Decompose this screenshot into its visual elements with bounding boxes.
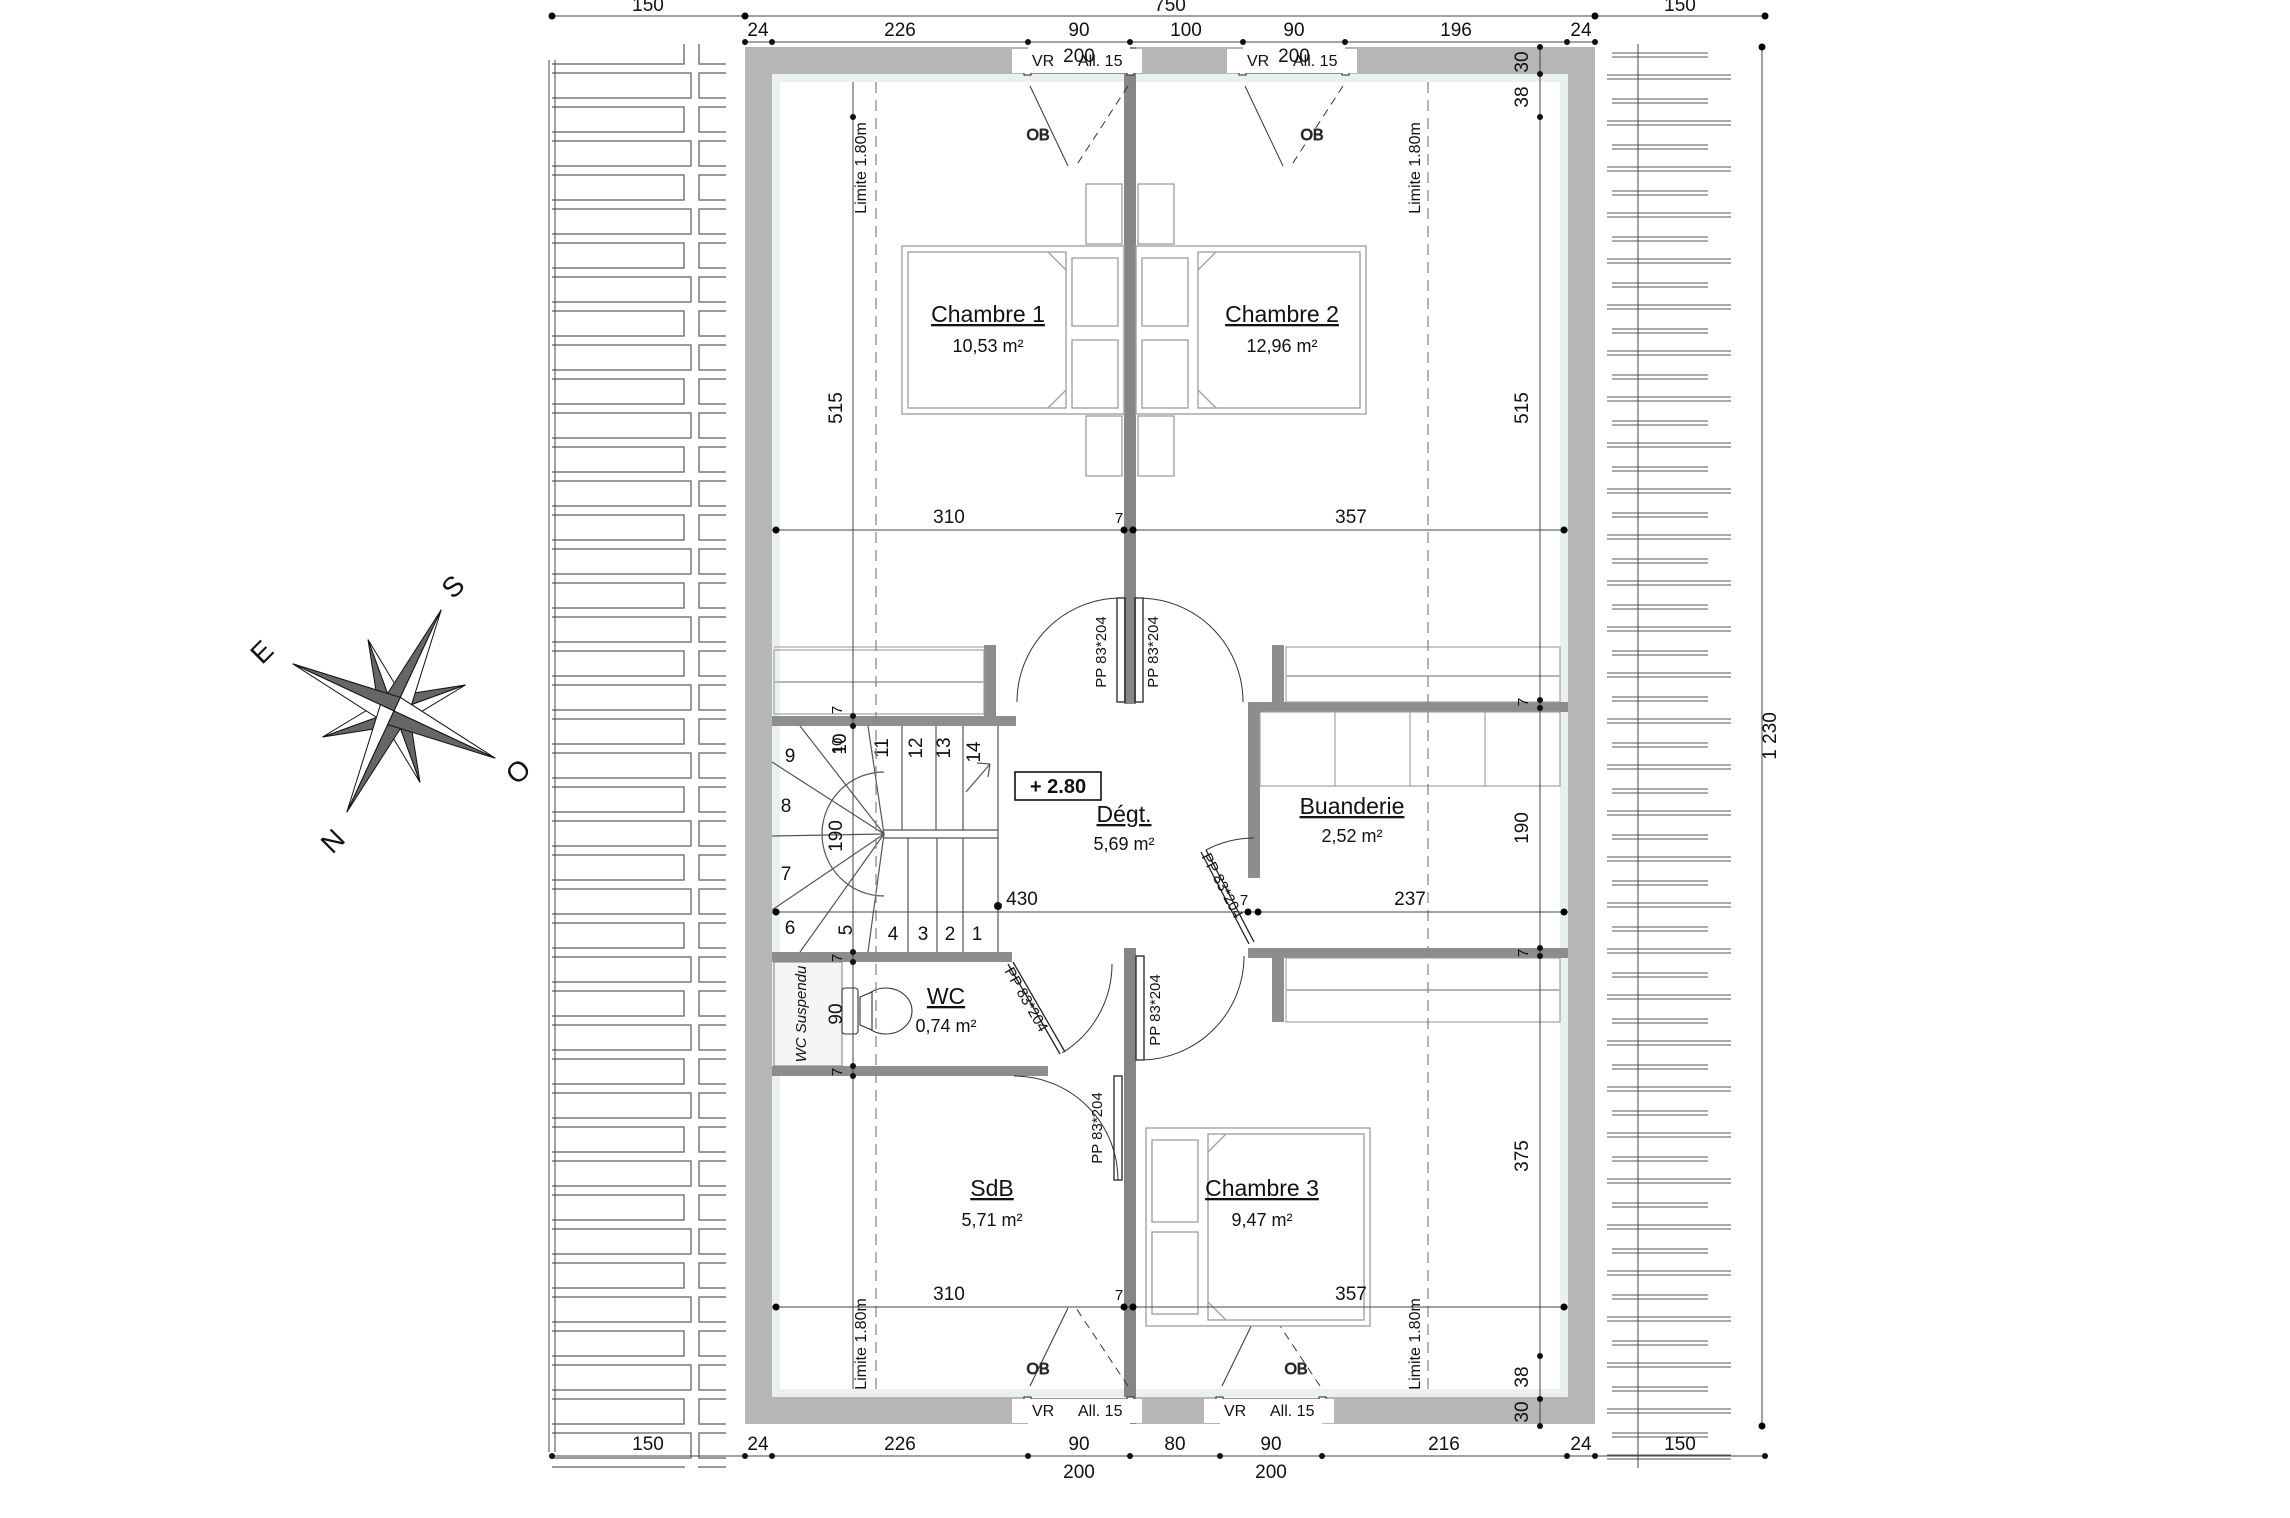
dim-bot-90: 90 <box>1068 1434 1089 1455</box>
room-name-buanderie: Buanderie <box>1300 793 1405 819</box>
dim-right-515: 515 <box>1512 392 1533 424</box>
door-chambre2: PP 83*204 <box>1135 598 1243 702</box>
dim-left-10: 10 <box>829 738 846 755</box>
dim-mid-310: 310 <box>933 507 965 528</box>
step-12: 12 <box>906 737 927 758</box>
dim-top-left-150: 150 <box>632 0 664 16</box>
step-9: 9 <box>785 746 796 767</box>
window-vr-label: VR <box>1224 1403 1246 1420</box>
door-size-label: PP 83*204 <box>1145 616 1162 687</box>
stair-direction-arrow <box>966 763 990 792</box>
nightstand <box>1086 184 1122 244</box>
dim-bot-80: 80 <box>1164 1434 1185 1455</box>
dim-top-24b: 24 <box>1570 20 1592 41</box>
bed-chambre2 <box>1136 184 1366 476</box>
room-area-buanderie: 2,52 m² <box>1321 826 1382 846</box>
step-2: 2 <box>945 924 956 945</box>
staircase: 1 2 3 4 5 6 7 8 9 10 11 12 13 14 + 2.80 <box>772 726 1101 952</box>
dim-top-90: 90 <box>1068 20 1089 41</box>
compass-west-label: O <box>500 753 537 790</box>
limite-label: Limite 1.80m <box>1407 122 1424 214</box>
step-4: 4 <box>888 924 899 945</box>
dim-right-38: 38 <box>1512 86 1533 107</box>
closet-chambre2 <box>1286 647 1560 702</box>
dim-right-7: 7 <box>1515 698 1532 706</box>
dim-left-90: 90 <box>826 1003 847 1024</box>
dim-top-200: 200 <box>1063 46 1095 67</box>
dim-bot-150b: 150 <box>1664 1434 1696 1455</box>
floor-plan-page: VR All. 15 VR All. 15 VR All. 15 VR All.… <box>0 0 2290 1518</box>
dim-top-right-150: 150 <box>1664 0 1696 16</box>
compass-star <box>293 610 496 813</box>
dim-bot-200b: 200 <box>1255 1462 1287 1483</box>
limite-label: Limite 1.80m <box>1407 1298 1424 1390</box>
dim-right-30b: 30 <box>1512 1401 1533 1422</box>
dim-low-7: 7 <box>1115 1287 1123 1304</box>
dim-top-196: 196 <box>1440 20 1472 41</box>
dim-bot-216: 216 <box>1428 1434 1460 1455</box>
dim-top-100: 100 <box>1170 20 1202 41</box>
room-name-sdb: SdB <box>970 1175 1013 1201</box>
dim-low-310: 310 <box>933 1284 965 1305</box>
level-value: + 2.80 <box>1030 776 1086 798</box>
dim-bot-24b: 24 <box>1570 1434 1592 1455</box>
dim-right-38b: 38 <box>1512 1366 1533 1387</box>
floor-plan-drawing: VR All. 15 VR All. 15 VR All. 15 VR All.… <box>0 0 2290 1518</box>
dim-top-750: 750 <box>1154 0 1186 16</box>
door-size-label: PP 83*204 <box>1089 1092 1106 1163</box>
ob-label: OB <box>1026 127 1049 144</box>
room-name-degagement: Dégt. <box>1097 801 1152 827</box>
step-3: 3 <box>918 924 929 945</box>
dim-top-200b: 200 <box>1278 46 1310 67</box>
door-buanderie: PP 83*204 <box>1198 838 1254 944</box>
bed-chambre1 <box>902 184 1124 476</box>
dim-right-190: 190 <box>1512 812 1533 844</box>
door-chambre3: PP 83*204 <box>1136 956 1244 1060</box>
door-size-label: PP 83*204 <box>1147 974 1164 1045</box>
step-14: 14 <box>964 741 985 763</box>
nightstand <box>1086 416 1122 476</box>
limite-label: Limite 1.80m <box>853 1298 870 1390</box>
dim-bot-150: 150 <box>632 1434 664 1455</box>
dim-right-30: 30 <box>1512 51 1533 72</box>
dim-left-7: 7 <box>829 706 846 714</box>
door-size-label: PP 83*204 <box>1198 850 1247 921</box>
ob-label: OB <box>1284 1361 1307 1378</box>
ob-label: OB <box>1026 1361 1049 1378</box>
level-marker: + 2.80 <box>1015 772 1101 800</box>
dim-mid-357: 357 <box>1335 507 1367 528</box>
dim-low-357: 357 <box>1335 1284 1367 1305</box>
dim-mid-7: 7 <box>1115 510 1123 527</box>
compass-east-label: E <box>244 634 279 669</box>
dim-left-515: 515 <box>826 392 847 424</box>
compass-rose: E S N O <box>242 561 542 864</box>
door-wc: PP 83*204 <box>1001 962 1112 1054</box>
step-6: 6 <box>785 918 796 939</box>
step-7: 7 <box>781 864 792 885</box>
dim-bot-24: 24 <box>747 1434 769 1455</box>
room-area-degagement: 5,69 m² <box>1093 834 1154 854</box>
room-area-chambre3: 9,47 m² <box>1231 1210 1292 1230</box>
dim-top-226: 226 <box>884 20 916 41</box>
compass-north-label: N <box>315 823 351 859</box>
dim-bot-200: 200 <box>1063 1462 1095 1483</box>
buanderie-shelves <box>1260 712 1560 786</box>
door-sdb: PP 83*204 <box>1014 1076 1122 1180</box>
dim-right-overall-1230: 1 230 <box>1760 712 1781 760</box>
step-5: 5 <box>836 925 857 936</box>
roof-left <box>549 44 726 1468</box>
dim-hall-7: 7 <box>1240 892 1248 909</box>
door-size-label: PP 83*204 <box>1093 616 1110 687</box>
limite-label: Limite 1.80m <box>853 122 870 214</box>
room-area-wc: 0,74 m² <box>915 1016 976 1036</box>
dim-top-24: 24 <box>747 20 769 41</box>
step-1: 1 <box>972 924 983 945</box>
dim-bot-226: 226 <box>884 1434 916 1455</box>
room-area-sdb: 5,71 m² <box>961 1210 1022 1230</box>
dim-top-90b: 90 <box>1283 20 1304 41</box>
dim-hall-430: 430 <box>1006 889 1038 910</box>
step-11: 11 <box>872 738 893 758</box>
window-allege-label: All. 15 <box>1078 1403 1123 1420</box>
room-area-chambre1: 10,53 m² <box>952 336 1023 356</box>
dim-bot-90b: 90 <box>1260 1434 1281 1455</box>
compass-south-label: S <box>435 569 470 604</box>
room-name-wc: WC <box>927 983 965 1009</box>
window-vr-label: VR <box>1032 1403 1054 1420</box>
room-area-chambre2: 12,96 m² <box>1246 336 1317 356</box>
dim-right-375: 375 <box>1512 1140 1533 1172</box>
ob-label: OB <box>1300 127 1323 144</box>
dim-left-7b: 7 <box>829 954 846 962</box>
room-name-chambre2: Chambre 2 <box>1225 301 1339 327</box>
step-13: 13 <box>934 737 955 758</box>
step-8: 8 <box>781 796 792 817</box>
dim-right-7b: 7 <box>1515 949 1532 957</box>
window-vr-label: VR <box>1032 53 1054 70</box>
nightstand <box>1138 416 1174 476</box>
room-name-chambre1: Chambre 1 <box>931 301 1045 327</box>
roof-right <box>1607 44 1731 1468</box>
window-vr-label: VR <box>1247 53 1269 70</box>
dim-left-190: 190 <box>826 820 847 852</box>
nightstand <box>1138 184 1174 244</box>
wc-suspendu-label: WC Suspendu <box>793 965 810 1062</box>
dim-hall-237: 237 <box>1394 889 1426 910</box>
dim-left-7c: 7 <box>829 1068 846 1076</box>
room-name-chambre3: Chambre 3 <box>1205 1175 1319 1201</box>
party-wall <box>1124 47 1136 1424</box>
door-chambre1: PP 83*204 <box>1017 598 1125 702</box>
window-allege-label: All. 15 <box>1270 1403 1315 1420</box>
door-size-label: PP 83*204 <box>1001 965 1051 1035</box>
